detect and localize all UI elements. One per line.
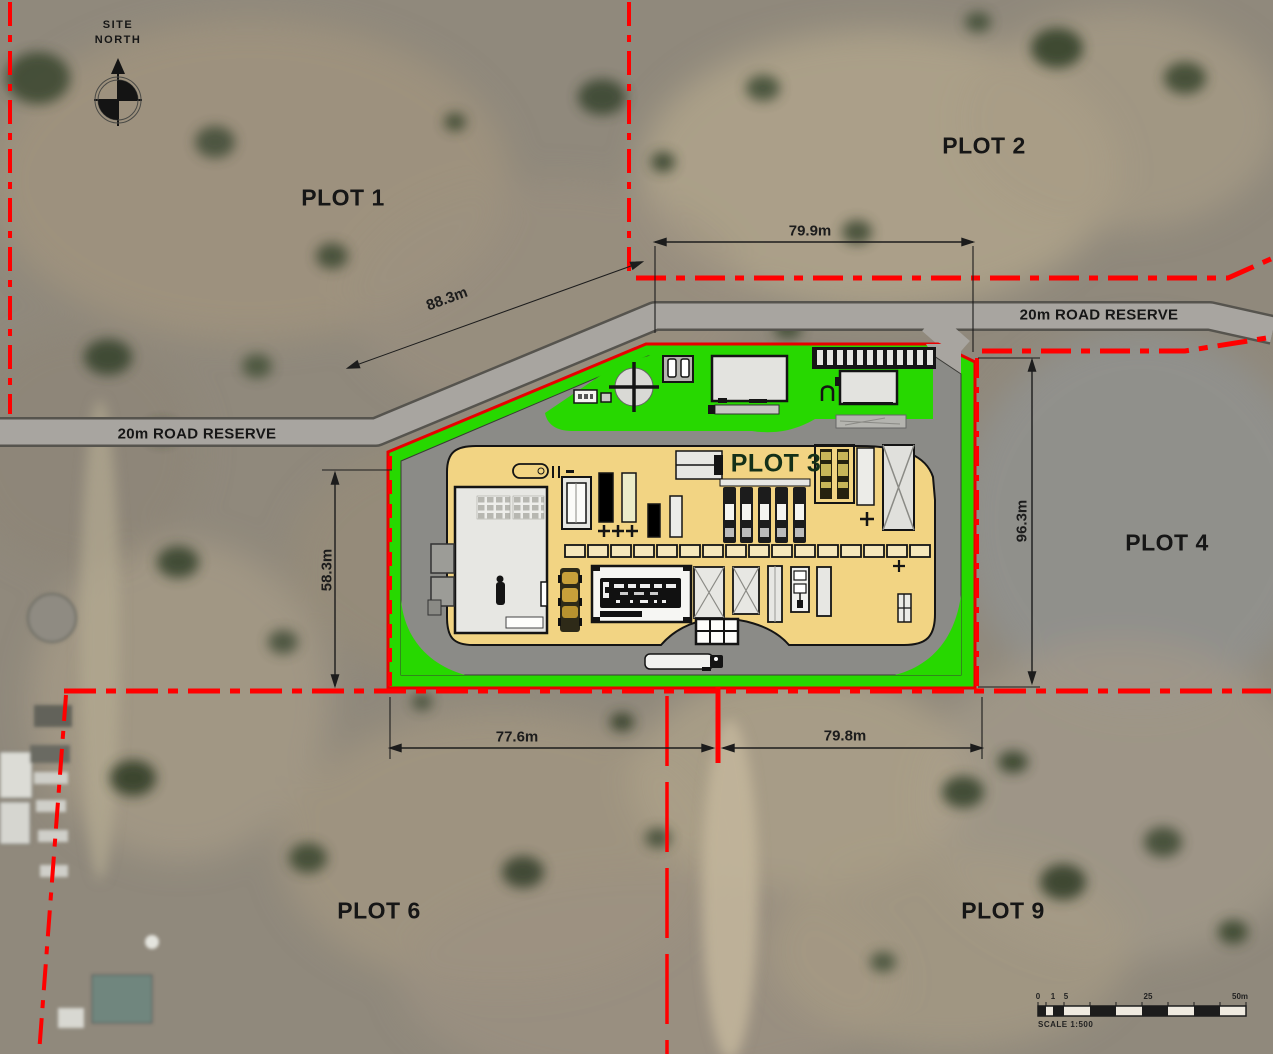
dimension-bottom-west: 77.6m — [496, 729, 539, 746]
twin-unit-building — [663, 356, 693, 382]
dimension-east-depth: 96.3m — [1014, 500, 1031, 543]
parking-bays — [812, 347, 936, 369]
dimension-west-depth: 58.3m — [319, 549, 336, 592]
dimension-bottom-east: 79.8m — [824, 728, 867, 745]
compass-label-line2: NORTH — [95, 33, 142, 48]
scale-tick-25: 25 — [1144, 992, 1153, 1001]
site-plan-page: SITE NORTH PLOT 1 PLOT 2 PLOT 3 PLOT 4 P… — [0, 0, 1273, 1054]
plot-label-9: PLOT 9 — [961, 898, 1045, 925]
truck-on-ring-road — [645, 654, 723, 671]
scale-caption: SCALE 1:500 — [1038, 1020, 1093, 1029]
aerial-map — [0, 0, 1273, 1054]
scale-tick-1: 1 — [1051, 992, 1055, 1001]
scale-tick-50: 50m — [1232, 992, 1248, 1001]
truck-bay-row — [720, 479, 810, 543]
office-building — [708, 356, 787, 414]
road-train-truck — [558, 568, 582, 632]
plot-label-2: PLOT 2 — [942, 133, 1026, 160]
plot-label-1: PLOT 1 — [301, 185, 385, 212]
scale-tick-0: 0 — [1036, 992, 1040, 1001]
plot-label-4: PLOT 4 — [1125, 530, 1209, 557]
hardstand-slab — [836, 415, 906, 428]
road-reserve-label-west: 20m ROAD RESERVE — [118, 426, 277, 443]
weighbridge-machine — [592, 566, 691, 622]
main-shed-building — [455, 487, 547, 633]
compass-label: SITE NORTH — [95, 18, 142, 48]
loading-docks — [428, 544, 454, 615]
dimension-top-width: 79.9m — [789, 223, 832, 240]
cross-braced-building — [883, 445, 914, 530]
compass-label-line1: SITE — [95, 18, 142, 33]
plot-label-6: PLOT 6 — [337, 898, 421, 925]
scale-tick-5: 5 — [1064, 992, 1068, 1001]
plot-label-3: PLOT 3 — [731, 450, 822, 479]
cattle-grid — [696, 619, 738, 644]
road-reserve-label-east: 20m ROAD RESERVE — [1020, 307, 1179, 324]
truck-horizontal — [676, 451, 723, 479]
